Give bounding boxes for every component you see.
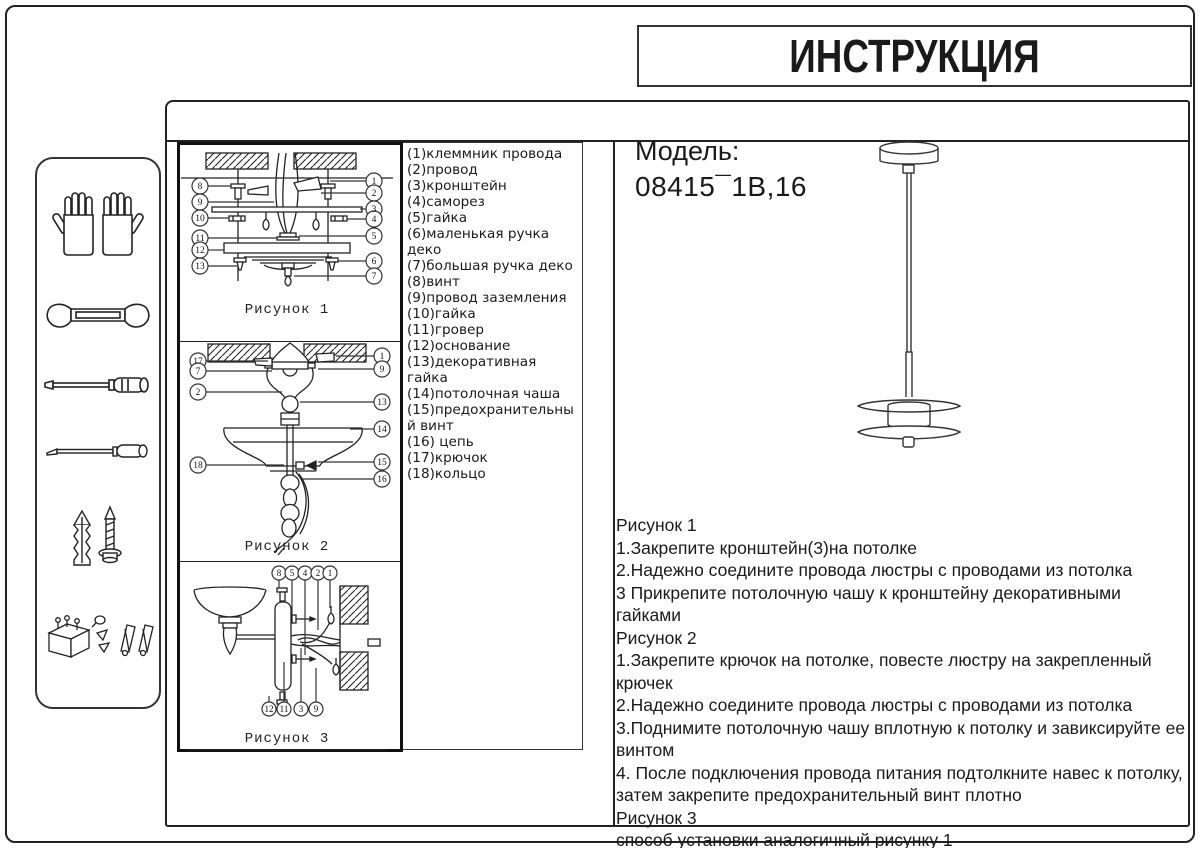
svg-text:9: 9 xyxy=(380,365,385,375)
svg-text:4: 4 xyxy=(303,568,308,578)
lamp-drawing xyxy=(842,134,977,459)
figure-3-label: Рисунок 3 xyxy=(245,731,330,747)
svg-text:7: 7 xyxy=(372,272,377,282)
part-item: (8)винт xyxy=(407,274,577,290)
instruction-line: 1.Закрепите крючок на потолке, повесте л… xyxy=(616,649,1188,694)
screwdriver-icon xyxy=(45,378,148,392)
header-box: ИНСТРУКЦИЯ xyxy=(637,25,1192,87)
gloves-icon xyxy=(52,193,145,255)
svg-text:12: 12 xyxy=(265,704,274,714)
svg-text:2: 2 xyxy=(316,568,321,578)
pendant-lamp-icon xyxy=(842,134,977,454)
svg-text:4: 4 xyxy=(372,215,377,225)
instruction-sheet: ИНСТРУКЦИЯ xyxy=(0,0,1200,848)
instruction-line: 1.Закрепите кронштейн(3)на потолке xyxy=(616,537,1188,560)
svg-text:13: 13 xyxy=(377,398,387,408)
instruction-line: 2.Надежно соедините провода люстры с про… xyxy=(616,559,1188,582)
figures-box: 8 9 10 11 12 13 1 2 3 4 5 6 7 Рисунок 1 xyxy=(177,142,403,752)
svg-text:1: 1 xyxy=(372,177,377,187)
part-item: (17)крючок xyxy=(407,450,577,466)
svg-text:9: 9 xyxy=(314,704,319,714)
svg-text:17: 17 xyxy=(193,357,203,367)
instruction-line: 4. После подключения провода питания под… xyxy=(616,762,1188,807)
anchor-screw-icon xyxy=(74,507,121,565)
figure-2-label: Рисунок 2 xyxy=(245,539,330,555)
vertical-divider-line xyxy=(613,140,615,825)
svg-text:1: 1 xyxy=(380,352,385,362)
svg-text:1: 1 xyxy=(328,568,333,578)
svg-text:12: 12 xyxy=(195,246,205,256)
svg-text:13: 13 xyxy=(195,262,205,272)
parts-list-box: (1)клеммник провода (2)провод (3)кронште… xyxy=(403,142,583,750)
svg-text:2: 2 xyxy=(372,189,377,199)
tools-icons xyxy=(37,159,159,707)
part-item: (10)гайка xyxy=(407,306,577,322)
part-item: (16) цепь xyxy=(407,434,577,450)
svg-text:18: 18 xyxy=(193,461,203,471)
part-item: (13)декоративная гайка xyxy=(407,354,577,386)
part-item: (18)кольцо xyxy=(407,466,577,482)
tools-sidebar xyxy=(35,157,161,709)
parts-list: (1)клеммник провода (2)провод (3)кронште… xyxy=(403,143,579,482)
figure-2: 17 7 2 18 1 9 13 14 15 16 Рисунок 2 xyxy=(180,341,400,561)
part-item: (4)саморез xyxy=(407,194,577,210)
figure-2-drawing: 17 7 2 18 1 9 13 14 15 16 Рисунок 2 xyxy=(180,342,394,556)
figure-1: 8 9 10 11 12 13 1 2 3 4 5 6 7 Рисунок 1 xyxy=(180,145,400,341)
part-item: (14)потолочная чаша xyxy=(407,386,577,402)
page-title: ИНСТРУКЦИЯ xyxy=(789,29,1039,83)
instruction-line: 2.Надежно соедините провода люстры с про… xyxy=(616,694,1188,717)
wrench-icon xyxy=(47,304,149,327)
svg-text:5: 5 xyxy=(290,568,295,578)
part-item: (6)маленькая ручка деко xyxy=(407,226,577,258)
assembly-instructions: Рисунок 1 1.Закрепите кронштейн(3)на пот… xyxy=(616,514,1188,848)
instruction-line: Рисунок 1 xyxy=(616,514,1188,537)
instruction-line: 3.Поднимите потолочную чашу вплотную к п… xyxy=(616,717,1188,762)
svg-text:8: 8 xyxy=(198,182,203,192)
svg-text:16: 16 xyxy=(377,475,387,485)
figure-1-label: Рисунок 1 xyxy=(245,302,330,318)
svg-text:14: 14 xyxy=(377,425,387,435)
instruction-line: Рисунок 2 xyxy=(616,627,1188,650)
part-item: (1)клеммник провода xyxy=(407,146,577,162)
part-item: (12)основание xyxy=(407,338,577,354)
instruction-line: способ установки аналогичный рисунку 1 xyxy=(616,829,1188,848)
small-parts-icon xyxy=(49,616,153,657)
svg-text:11: 11 xyxy=(280,704,289,714)
svg-text:10: 10 xyxy=(195,214,205,224)
instruction-line: Рисунок 3 xyxy=(616,807,1188,830)
svg-text:7: 7 xyxy=(196,367,201,377)
svg-text:3: 3 xyxy=(372,205,377,215)
svg-text:6: 6 xyxy=(372,257,377,267)
svg-text:15: 15 xyxy=(377,458,387,468)
part-item: (15)предохранительный винт xyxy=(407,402,577,434)
svg-text:11: 11 xyxy=(195,234,204,244)
figure-3-drawing: 8 5 4 2 1 12 11 3 9 Рисунок 3 xyxy=(180,562,394,757)
part-item: (11)гровер xyxy=(407,322,577,338)
figure-3: 8 5 4 2 1 12 11 3 9 Рисунок 3 xyxy=(180,561,400,762)
svg-text:2: 2 xyxy=(196,388,201,398)
svg-text:5: 5 xyxy=(372,232,377,242)
svg-text:3: 3 xyxy=(299,704,304,714)
instruction-line: 3 Прикрепите потолочную чашу к кронштейн… xyxy=(616,582,1188,627)
part-item: (7)большая ручка деко xyxy=(407,258,577,274)
svg-text:9: 9 xyxy=(198,198,203,208)
part-item: (2)провод xyxy=(407,162,577,178)
part-item: (5)гайка xyxy=(407,210,577,226)
svg-text:8: 8 xyxy=(277,568,282,578)
figure-1-drawing: 8 9 10 11 12 13 1 2 3 4 5 6 7 Рисунок 1 xyxy=(180,145,394,336)
part-item: (3)кронштейн xyxy=(407,178,577,194)
awl-icon xyxy=(47,445,147,457)
part-item: (9)провод заземления xyxy=(407,290,577,306)
